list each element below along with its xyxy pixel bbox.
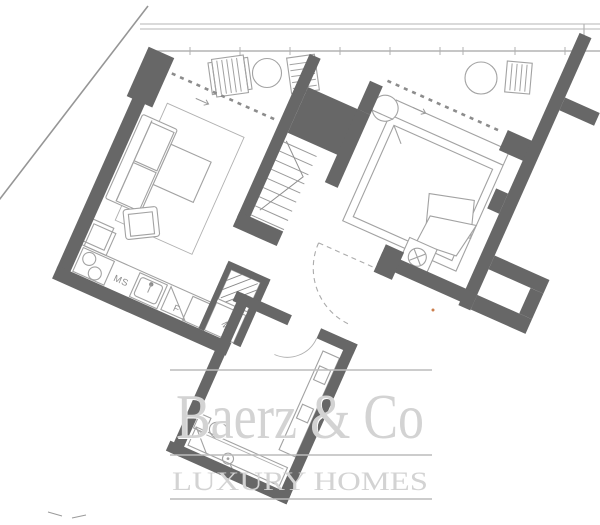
kitchen-ms-label: MS [112,273,130,289]
plan-stray-marks [48,512,86,518]
balcony-railing [140,24,600,55]
balcony-table-1 [253,59,282,88]
balcony-table-2 [465,62,497,94]
wall-niche-top [489,256,550,294]
wall-balcony-wing [559,98,599,126]
balcony-planter-3 [505,61,533,94]
window-living [165,73,276,134]
wall-corner-pier [127,47,175,108]
watermark: Baerz & Co LUXURY HOMES [170,370,432,499]
watermark-brand: Baerz & Co [176,381,424,452]
entry-door [293,243,375,325]
wall-kitchen [52,266,231,356]
wall-niche-cap [519,288,543,319]
door-accent-dot [432,309,435,312]
floorplan-image: MS F M [0,0,600,525]
bathroom-door-arc [274,325,316,367]
watermark-tagline: LUXURY HOMES [172,467,428,496]
armchair [123,206,160,239]
wall-bedroom-bottom-pier [374,244,404,280]
floorplan-svg: MS F M [0,0,600,525]
